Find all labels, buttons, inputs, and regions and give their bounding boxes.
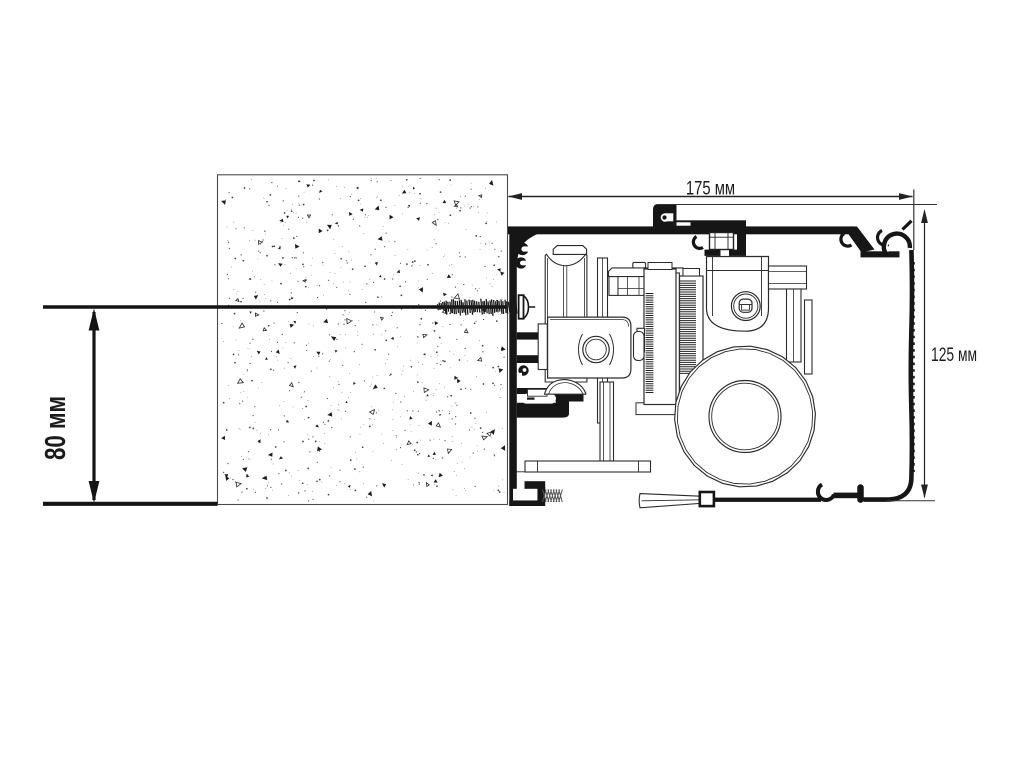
svg-text:175 мм: 175 мм	[686, 176, 735, 199]
svg-text:80 мм: 80 мм	[41, 396, 72, 460]
svg-text:125 мм: 125 мм	[931, 344, 977, 366]
